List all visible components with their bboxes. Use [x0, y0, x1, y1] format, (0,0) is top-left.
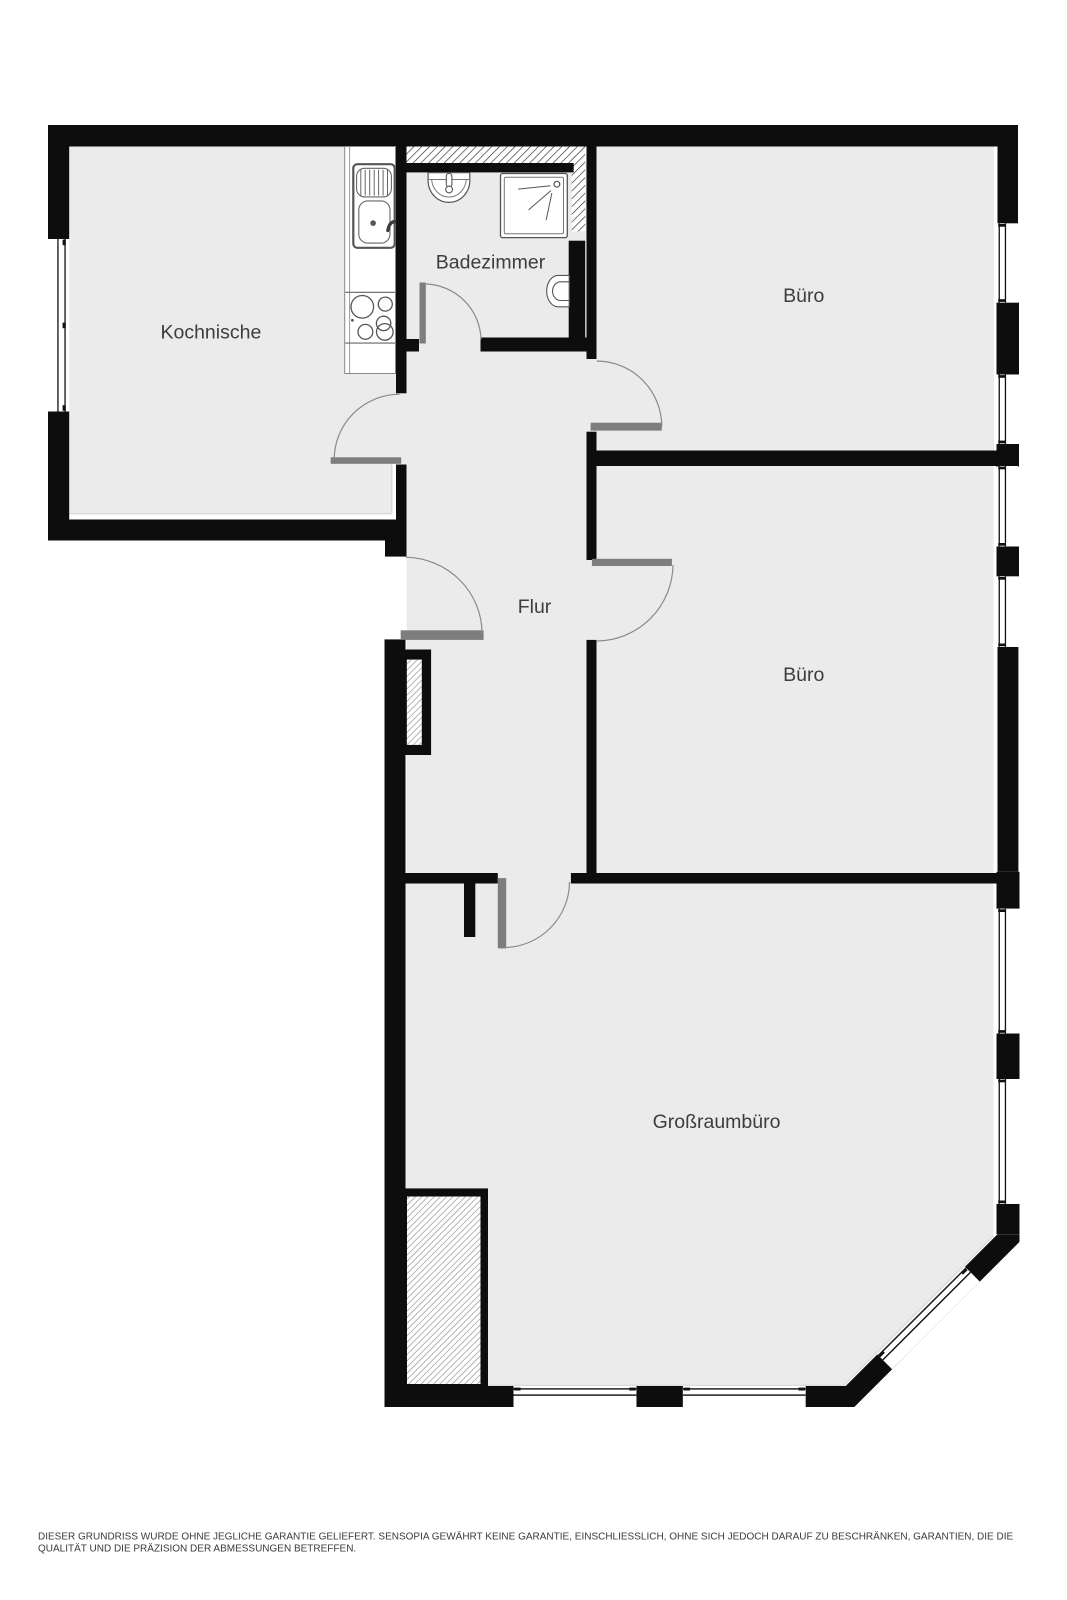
svg-text:Flur: Flur — [518, 596, 552, 618]
svg-text:DIESER GRUNDRISS WURDE OHNE JE: DIESER GRUNDRISS WURDE OHNE JEGLICHE GAR… — [38, 1531, 1014, 1543]
svg-text:Badezimmer: Badezimmer — [436, 252, 546, 274]
svg-text:Großraumbüro: Großraumbüro — [653, 1111, 781, 1133]
svg-text:Büro: Büro — [783, 664, 824, 686]
svg-text:QUALITÄT UND DIE PRÄZISION DER: QUALITÄT UND DIE PRÄZISION DER ABMESSUNG… — [38, 1543, 356, 1555]
svg-text:Büro: Büro — [783, 285, 824, 307]
svg-text:Kochnische: Kochnische — [160, 322, 261, 344]
